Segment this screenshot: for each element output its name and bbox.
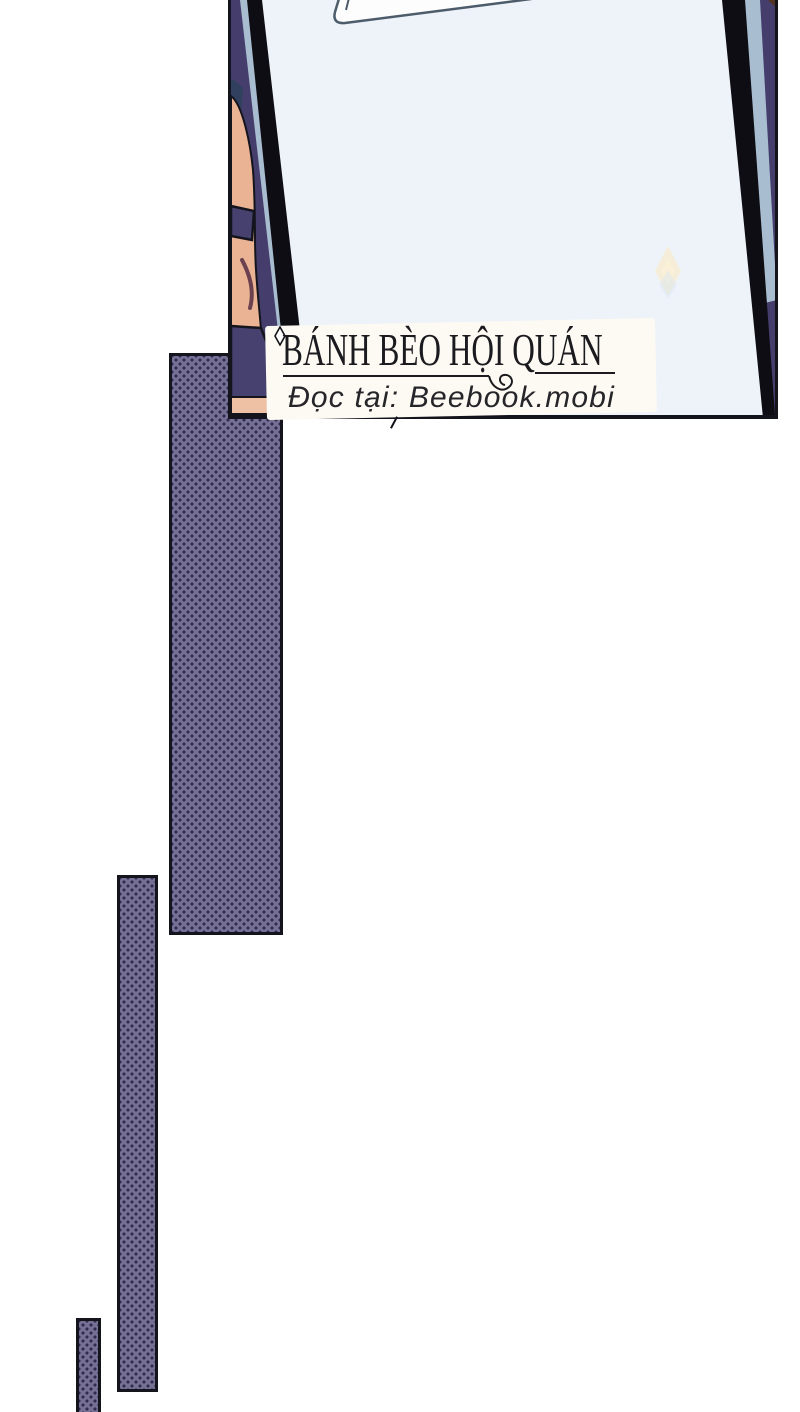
halftone-bar-large xyxy=(169,353,283,935)
watermark-subtitle: Đọc tại: Beebook.mobi xyxy=(288,382,688,414)
halftone-bar-medium xyxy=(117,875,158,1392)
watermark-title: BÁNH BÈO HỘI QUÁN xyxy=(282,326,622,374)
halftone-bar-small xyxy=(76,1318,101,1412)
comic-page: BÁNH BÈO HỘI QUÁN Đọc tại: Beebook.mobi xyxy=(0,0,800,1412)
cuff-band-shape xyxy=(231,206,254,240)
watermark: BÁNH BÈO HỘI QUÁN Đọc tại: Beebook.mobi xyxy=(252,316,672,428)
